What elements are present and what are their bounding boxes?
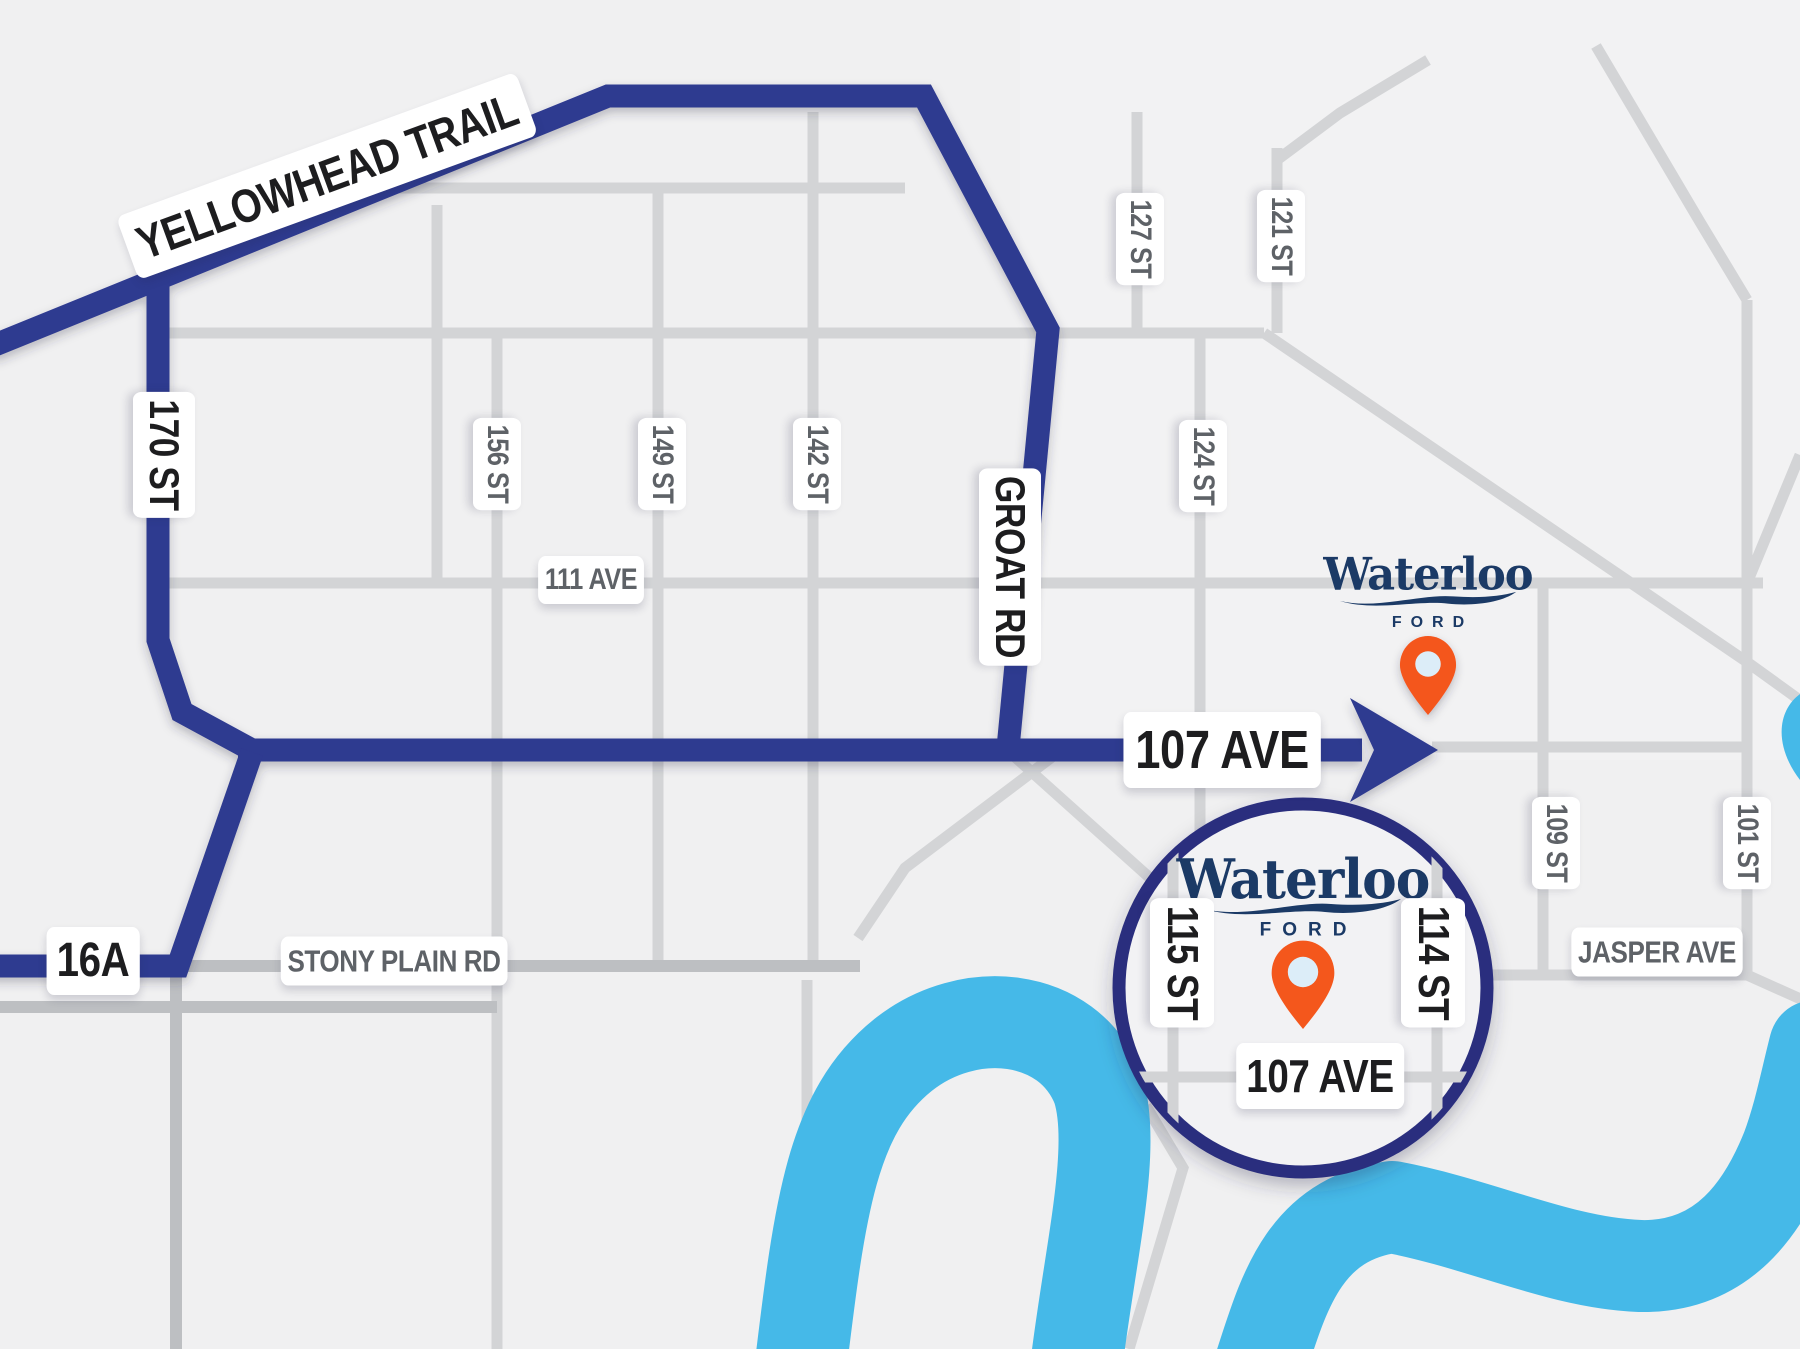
inset-street-label-115-st: 115 ST — [1150, 898, 1214, 1028]
street-label-149-st: 149 ST — [638, 418, 686, 510]
road-label-170-st: 170 ST — [133, 392, 195, 518]
street-label-121-st: 121 ST — [1257, 190, 1305, 282]
road-label-107-ave: 107 AVE — [1123, 712, 1320, 788]
street-label-101-st: 101 ST — [1723, 797, 1771, 889]
street-label-142-st: 142 ST — [793, 418, 841, 510]
road-label-groat-rd: GROAT RD — [979, 468, 1041, 665]
map-canvas: YELLOWHEAD TRAIL 170 ST GROAT RD 107 AVE… — [0, 0, 1800, 1349]
dealership-wordmark: Waterloo — [1323, 552, 1532, 597]
logo-swoosh-icon — [1335, 591, 1521, 609]
inset-dealership-brand: FORD — [1249, 921, 1358, 940]
inset-street-label-107-ave: 107 AVE — [1236, 1043, 1404, 1109]
street-label-stony-plain-rd: STONY PLAIN RD — [281, 937, 508, 986]
road-label-16a: 16A — [47, 927, 140, 995]
street-label-127-st: 127 ST — [1116, 193, 1164, 285]
dealership-brand: FORD — [1383, 615, 1473, 631]
street-label-156-st: 156 ST — [473, 418, 521, 510]
street-label-124-st: 124 ST — [1179, 420, 1227, 512]
street-label-jasper-ave: JASPER AVE — [1571, 928, 1742, 977]
street-label-111-ave: 111 AVE — [538, 556, 644, 604]
street-label-109-st: 109 ST — [1532, 797, 1580, 889]
pin-center — [1415, 651, 1441, 677]
inset-street-label-114-st: 114 ST — [1401, 898, 1465, 1028]
inset-logo-swoosh-icon — [1197, 898, 1409, 918]
inset-pin-center — [1288, 957, 1318, 987]
